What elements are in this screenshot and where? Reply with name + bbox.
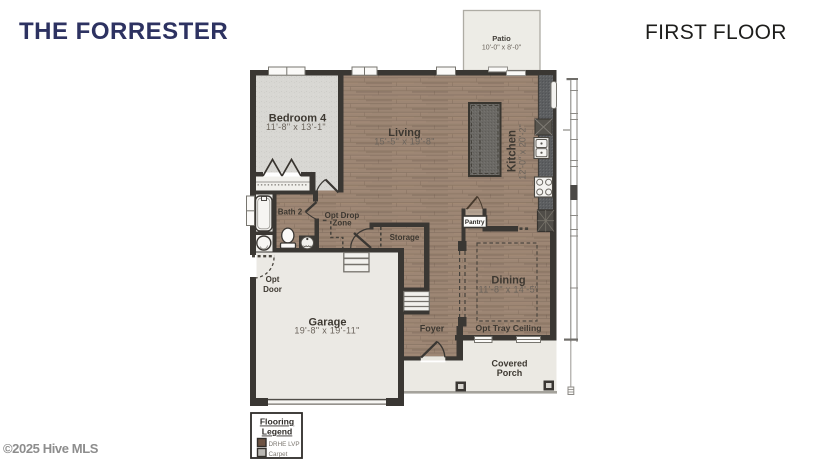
svg-text:DRHE LVP: DRHE LVP	[269, 441, 300, 448]
svg-text:Opt: Opt	[266, 275, 280, 284]
svg-text:Zone: Zone	[332, 219, 352, 228]
svg-text:Pantry: Pantry	[465, 219, 485, 226]
svg-text:Storage: Storage	[390, 233, 420, 242]
svg-text:Foyer: Foyer	[420, 324, 445, 334]
svg-text:11'-8" x 13'-1": 11'-8" x 13'-1"	[266, 122, 326, 132]
svg-text:Legend: Legend	[262, 427, 293, 437]
svg-text:15'-5" x 19'-8": 15'-5" x 19'-8"	[374, 137, 435, 147]
svg-text:Flooring: Flooring	[260, 417, 294, 427]
svg-text:Bath 2: Bath 2	[278, 208, 303, 217]
svg-text:Porch: Porch	[497, 368, 523, 378]
svg-text:12'-0" x 20'-2": 12'-0" x 20'-2"	[518, 124, 528, 179]
svg-text:19'-8" x 19'-11": 19'-8" x 19'-11"	[294, 326, 359, 336]
svg-text:Opt Tray Ceiling: Opt Tray Ceiling	[476, 323, 542, 333]
svg-text:10'-0" x 8'-0": 10'-0" x 8'-0"	[482, 45, 522, 52]
svg-text:Patio: Patio	[492, 34, 511, 43]
svg-text:Covered: Covered	[491, 359, 527, 369]
svg-text:Door: Door	[263, 285, 282, 294]
svg-text:Carpet: Carpet	[269, 451, 288, 458]
svg-text:11'-8" x 14'-5": 11'-8" x 14'-5"	[479, 285, 539, 295]
